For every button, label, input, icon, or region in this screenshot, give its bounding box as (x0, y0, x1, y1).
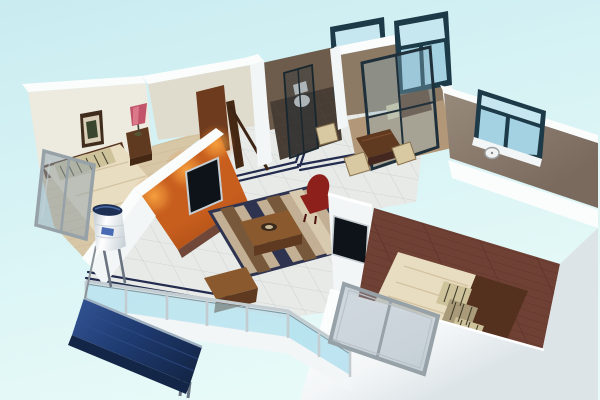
picture-frame (80, 110, 104, 148)
clock-center (491, 152, 493, 154)
floorplan-svg (0, 0, 600, 400)
shower-glass-partition (284, 65, 318, 158)
leaning-window-left (36, 151, 94, 239)
picture-art (86, 120, 98, 139)
lamp-shade-hilite (133, 106, 139, 125)
lamp-base (134, 132, 142, 136)
floorplan-render (0, 0, 600, 400)
decor-bowl-inner (265, 225, 273, 229)
lamp-stem (138, 124, 139, 133)
wall-clock (485, 148, 499, 159)
